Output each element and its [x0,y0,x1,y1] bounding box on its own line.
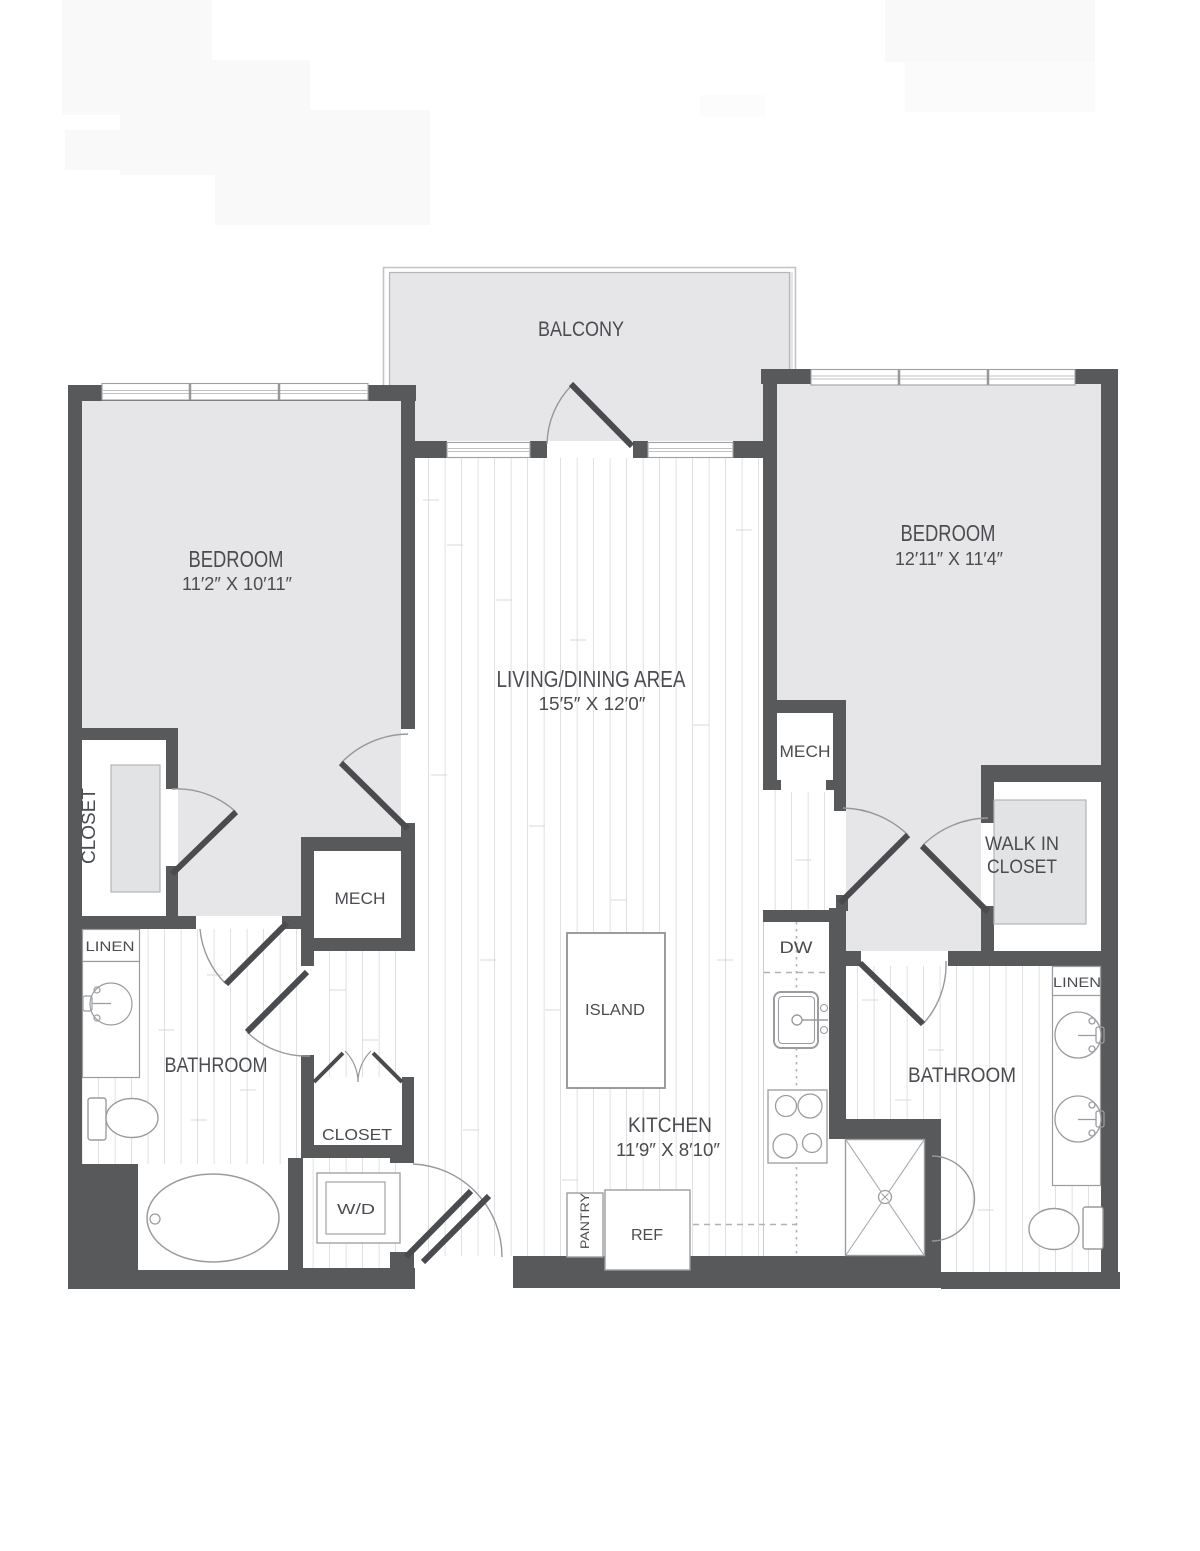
svg-text:CLOSET: CLOSET [987,857,1057,878]
svg-text:BEDROOM: BEDROOM [189,546,284,572]
svg-text:REF: REF [631,1227,663,1244]
svg-text:W/D: W/D [337,1201,375,1218]
svg-text:WALK IN: WALK IN [985,834,1059,855]
svg-text:BATHROOM: BATHROOM [165,1054,268,1077]
svg-text:MECH: MECH [335,890,386,908]
svg-text:LINEN: LINEN [86,938,135,954]
svg-text:MECH: MECH [780,743,831,761]
svg-text:LIVING/DINING AREA: LIVING/DINING AREA [497,666,687,692]
svg-text:BALCONY: BALCONY [538,318,624,341]
svg-text:BEDROOM: BEDROOM [901,520,996,546]
svg-text:ISLAND: ISLAND [585,1002,645,1019]
svg-text:CLOSET: CLOSET [322,1127,393,1144]
svg-text:KITCHEN: KITCHEN [628,1114,712,1137]
svg-text:PANTRY: PANTRY [580,1193,592,1249]
svg-text:12′11″ X 11′4″: 12′11″ X 11′4″ [895,548,1003,569]
svg-text:DW: DW [780,939,813,957]
svg-text:CLOSET: CLOSET [79,788,100,864]
svg-text:11′9″ X 8′10″: 11′9″ X 8′10″ [616,1139,720,1160]
svg-text:BATHROOM: BATHROOM [908,1064,1016,1087]
svg-text:15′5″ X 12′0″: 15′5″ X 12′0″ [539,693,646,714]
svg-text:LINEN: LINEN [1053,974,1101,990]
svg-text:11′2″ X 10′11″: 11′2″ X 10′11″ [182,573,292,594]
